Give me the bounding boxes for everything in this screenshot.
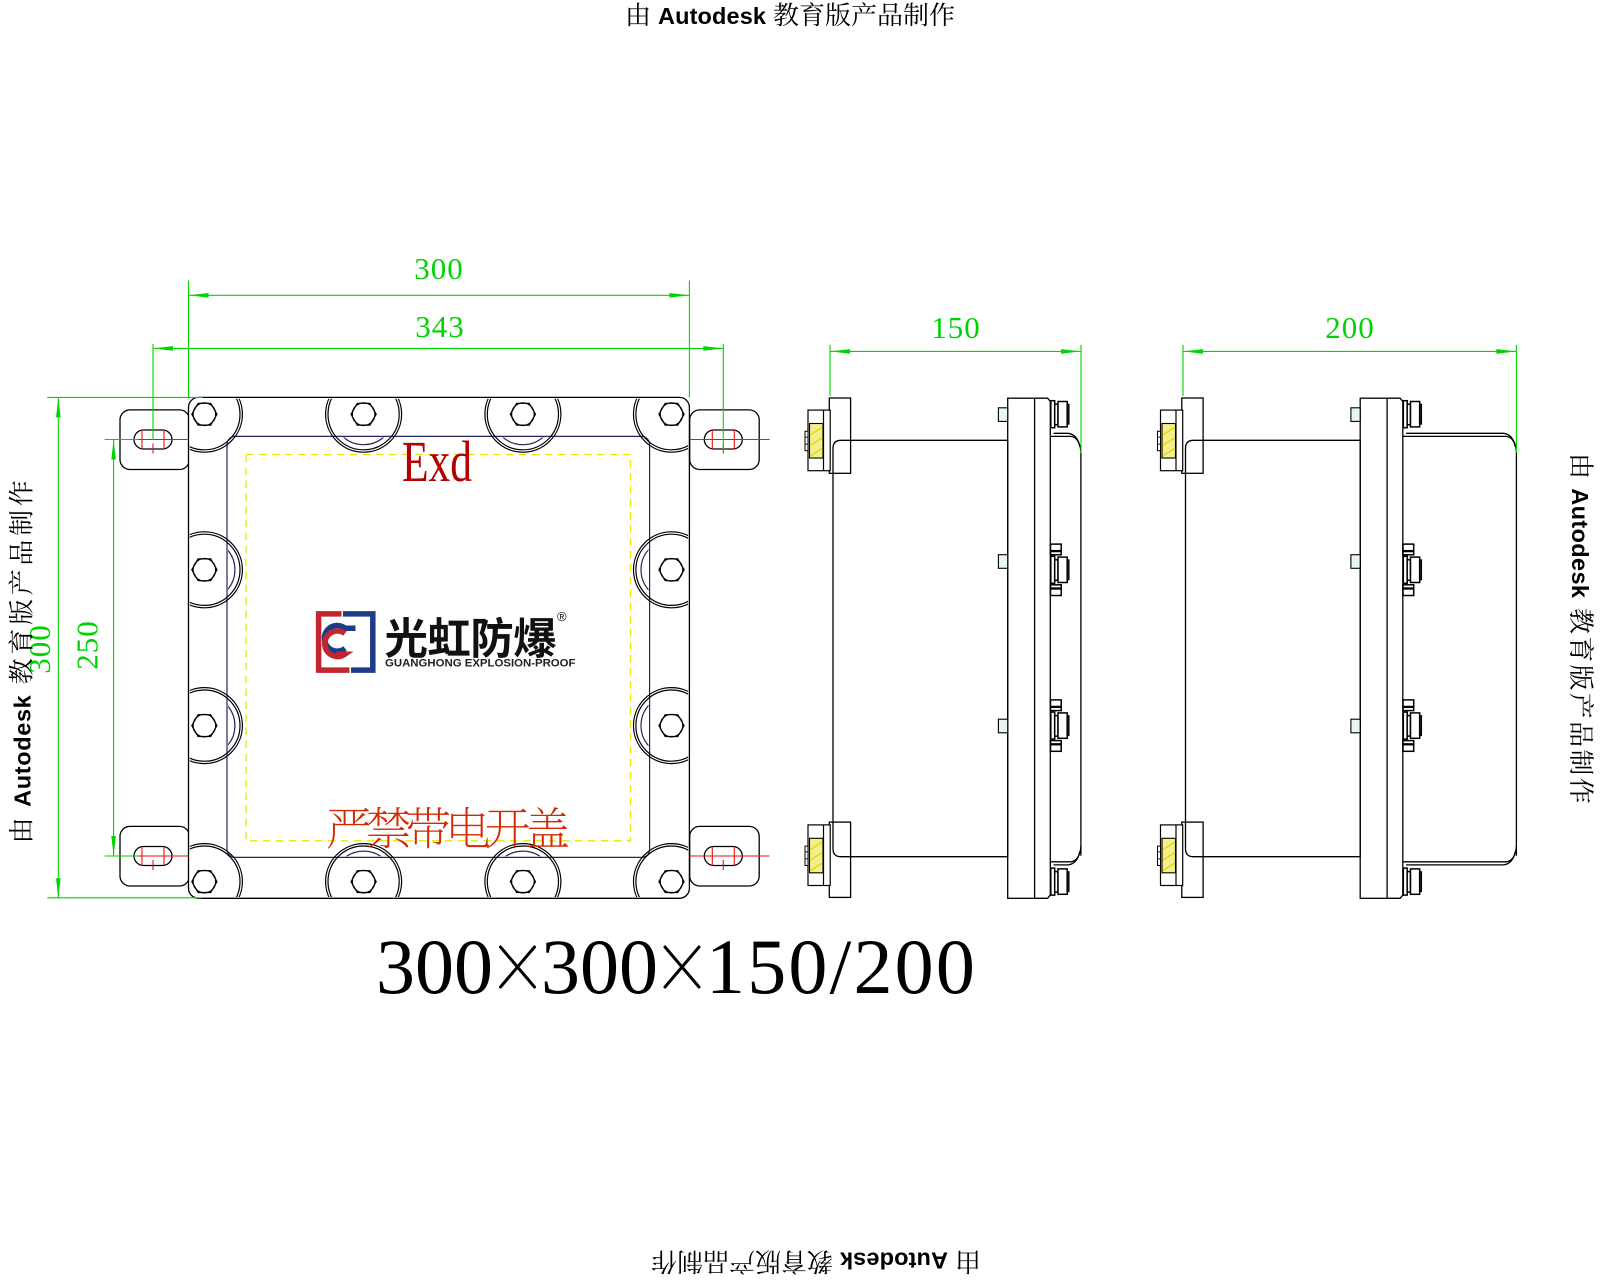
- svg-text:150/200: 150/200: [706, 923, 977, 1010]
- svg-text:300: 300: [22, 624, 57, 674]
- svg-text:Autodesk: Autodesk: [10, 694, 36, 806]
- svg-text:300: 300: [376, 923, 493, 1010]
- svg-text:Autodesk: Autodesk: [658, 3, 767, 29]
- svg-text:Autodesk: Autodesk: [839, 1248, 948, 1274]
- svg-text:250: 250: [70, 620, 105, 670]
- svg-text:®: ®: [557, 609, 567, 624]
- svg-text:Autodesk: Autodesk: [1567, 488, 1593, 599]
- svg-text:GUANGHONG EXPLOSION-PROOF: GUANGHONG EXPLOSION-PROOF: [385, 658, 576, 670]
- svg-text:343: 343: [415, 309, 465, 344]
- svg-text:300: 300: [541, 923, 658, 1010]
- svg-text:300: 300: [414, 251, 464, 286]
- svg-text:200: 200: [1325, 310, 1375, 345]
- svg-text:150: 150: [931, 310, 981, 345]
- svg-text:Exd: Exd: [402, 429, 472, 494]
